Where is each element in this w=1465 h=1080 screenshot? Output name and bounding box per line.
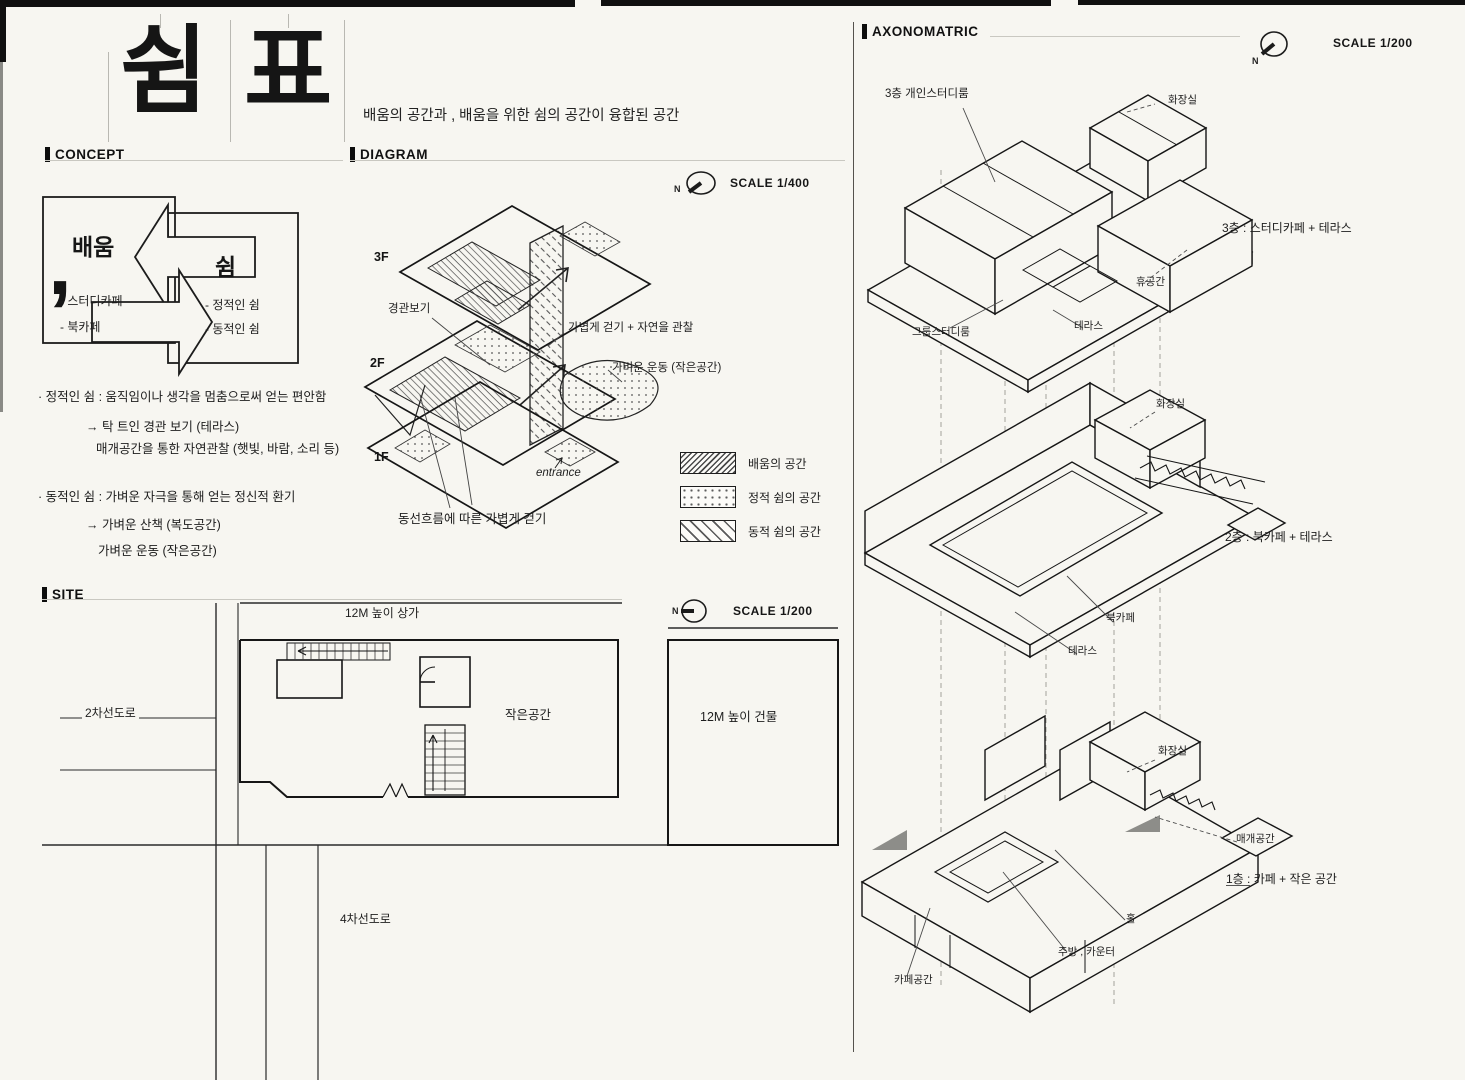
site-building-label: 12M 높이 건물	[700, 710, 777, 725]
diagram-exercise-label: 가벼운 운동 (작은공간)	[612, 362, 721, 376]
concept-learn-item: - 스터디카페	[60, 292, 123, 309]
title-char-pyo: 표	[244, 24, 332, 120]
scan-edge-top-mid	[601, 0, 1051, 6]
axon-rule	[990, 36, 1240, 37]
arrow-right	[92, 270, 212, 374]
axon-scale: SCALE 1/200	[1333, 36, 1413, 50]
diagram-entrance-label: entrance	[536, 467, 581, 481]
legend-swatch-static-rest	[680, 486, 736, 508]
concept-diagram	[40, 185, 350, 385]
axon-1f-cafe-label: 카페공간	[894, 974, 933, 987]
axon-1f-toilet-label: 화장실	[1158, 745, 1187, 758]
concept-note: 가벼운 운동 (작은공간)	[98, 540, 217, 559]
concept-learn-item: - 북카페	[60, 318, 100, 335]
axon-2f-bookcafe-label: 북카페	[1106, 612, 1135, 625]
legend-label: 정적 쉼의 공간	[748, 489, 821, 506]
axon-3f-group-label: 그룹스터디룸	[912, 326, 970, 339]
title-char-swim: 쉼	[120, 24, 208, 120]
diagram-flow-label: 동선흐름에 따른 가볍게 걷기	[398, 512, 546, 527]
caption-underline	[1226, 885, 1250, 886]
title-guide-line	[344, 20, 345, 142]
axon-header-label: AXONOMATRIC	[872, 24, 979, 39]
scan-edge-left-faint	[0, 62, 3, 412]
title-guide-line	[230, 20, 231, 142]
site-small-space-label: 작은공간	[505, 708, 551, 723]
concept-rule	[45, 160, 343, 161]
axon-3f-caption: 3층 : 스터디카페 + 테라스	[1222, 219, 1352, 236]
scan-edge-top-left	[0, 0, 575, 7]
concept-learn-title: 배움	[72, 228, 114, 262]
scan-edge-top-right	[1078, 0, 1465, 5]
axon-2f-toilet-label: 화장실	[1156, 398, 1185, 411]
diagram-rule	[350, 160, 845, 161]
axon-3f-toilet-label: 화장실	[1168, 94, 1197, 107]
axon-header: AXONOMATRIC	[862, 24, 979, 39]
axon-2f-terrace-label: 테라스	[1068, 645, 1097, 658]
diagram-view-label: 경관보기	[388, 303, 430, 317]
axon-drawings	[855, 60, 1465, 1060]
axon-3f-rest-label: 휴공간	[1136, 276, 1165, 289]
diagram-floor-1f: 1F	[374, 450, 389, 464]
presentation-board: , 쉼 표 배움의 공간과 , 배움을 위한 쉼의 공간이 융합된 공간 CON…	[0, 0, 1465, 1080]
diagram-scale: SCALE 1/400	[730, 176, 810, 190]
legend-row: 동적 쉼의 공간	[680, 520, 821, 542]
concept-note: · 동적인 쉼 : 가벼운 자극을 통해 얻는 정신적 환기	[38, 486, 295, 505]
legend-row: 정적 쉼의 공간	[680, 486, 821, 508]
site-scale: SCALE 1/200	[733, 604, 813, 618]
site-plan	[40, 595, 850, 1080]
concept-note: → 가벼운 산책 (복도공간)	[86, 514, 221, 533]
site-shop-label: 12M 높이 상가	[345, 606, 419, 620]
concept-rest-item: - 정적인 쉼	[205, 296, 260, 313]
legend-swatch-dynamic-rest	[680, 520, 736, 542]
diagram-walk-label: 가볍게 걷기 + 자연을 관찰	[568, 322, 693, 336]
north-letter: N	[672, 606, 679, 616]
concept-note: · 정적인 쉼 : 움직임이나 생각을 멈춤으로써 얻는 편안함	[38, 386, 326, 405]
axon-1f-mediating-label: 매개공간	[1236, 833, 1275, 846]
concept-note: → 탁 트인 경관 보기 (테라스)	[86, 416, 239, 435]
axon-2f-caption: 2층 : 북카페 + 테라스	[1225, 528, 1333, 545]
arrow-left	[135, 205, 255, 309]
concept-rest-item: - 동적인 쉼	[205, 320, 260, 337]
legend-label: 배움의 공간	[748, 455, 807, 472]
axon-3f-study-label: 3층 개인스터디룸	[885, 88, 969, 102]
site-road4-label: 4차선도로	[340, 912, 391, 926]
board-subtitle: 배움의 공간과 , 배움을 위한 쉼의 공간이 융합된 공간	[363, 104, 679, 125]
diagram-floor-2f: 2F	[370, 356, 385, 370]
site-road2-label: 2차선도로	[82, 706, 139, 720]
concept-rest-title: 쉼	[215, 248, 236, 282]
legend-row: 배움의 공간	[680, 452, 807, 474]
axon-divider	[853, 22, 854, 1052]
axon-1f-kitchen-label: 주방 , 카운터	[1058, 946, 1115, 959]
legend-label: 동적 쉼의 공간	[748, 523, 821, 540]
title-guide-line	[108, 52, 109, 142]
diagram-floor-3f: 3F	[374, 250, 389, 264]
legend-swatch-learning	[680, 452, 736, 474]
axon-1f-hall-label: 홀	[1126, 913, 1136, 926]
axon-3f-terrace-label: 테라스	[1074, 320, 1103, 333]
section-bar	[862, 24, 867, 39]
concept-note: 매개공간을 통한 자연관찰 (햇빛, 바람, 소리 등)	[96, 438, 339, 457]
scan-edge-left	[0, 0, 6, 62]
